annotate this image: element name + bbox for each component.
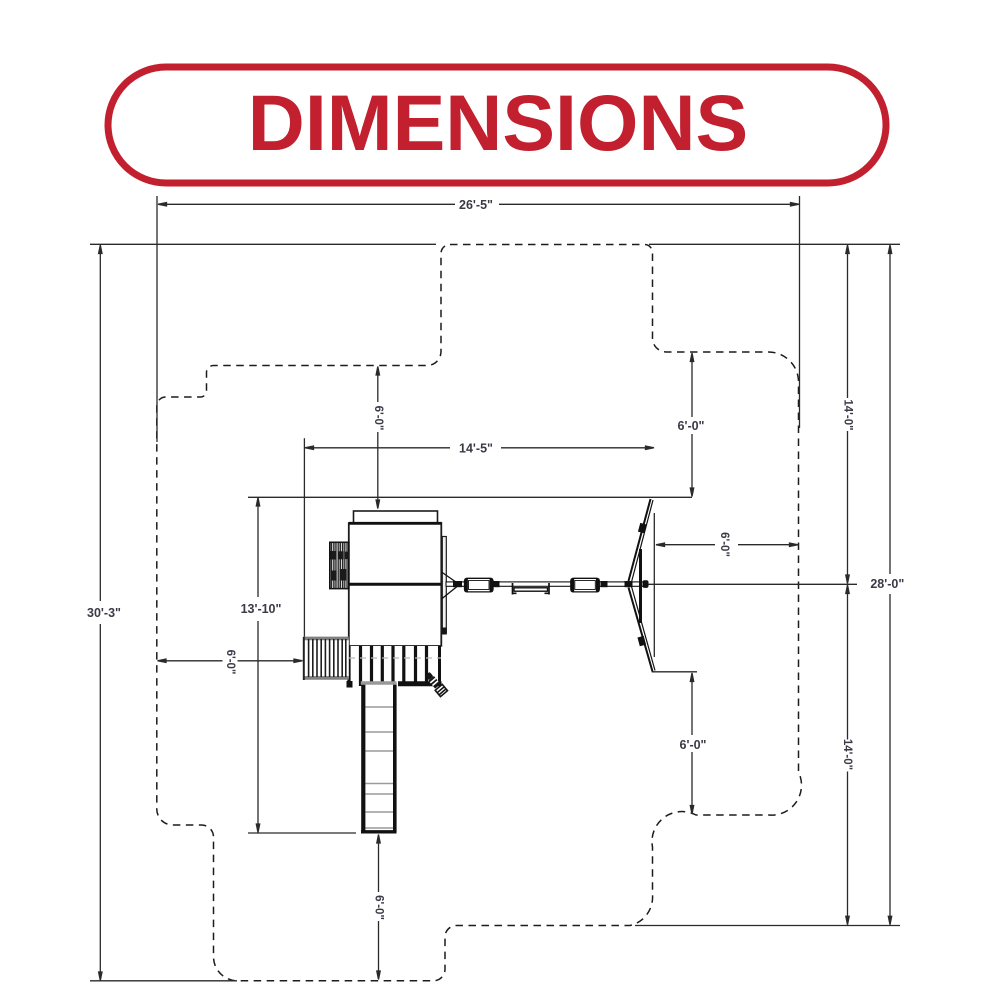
- svg-text:14'-0": 14'-0": [841, 399, 853, 430]
- svg-text:28'-0": 28'-0": [870, 577, 904, 591]
- svg-text:26'-5": 26'-5": [459, 198, 493, 212]
- svg-text:14'-0": 14'-0": [841, 739, 853, 770]
- svg-text:14'-5": 14'-5": [459, 441, 493, 455]
- svg-text:6'-0": 6'-0": [373, 895, 385, 920]
- svg-text:6'-0": 6'-0": [680, 738, 707, 752]
- svg-text:13'-10": 13'-10": [241, 602, 282, 616]
- svg-text:6'-0": 6'-0": [372, 406, 384, 431]
- svg-text:30'-3": 30'-3": [87, 606, 121, 620]
- svg-text:6'-0": 6'-0": [224, 650, 236, 675]
- svg-text:6'-0": 6'-0": [678, 419, 705, 433]
- svg-text:DIMENSIONS: DIMENSIONS: [248, 78, 748, 167]
- svg-text:6'-0": 6'-0": [718, 532, 730, 557]
